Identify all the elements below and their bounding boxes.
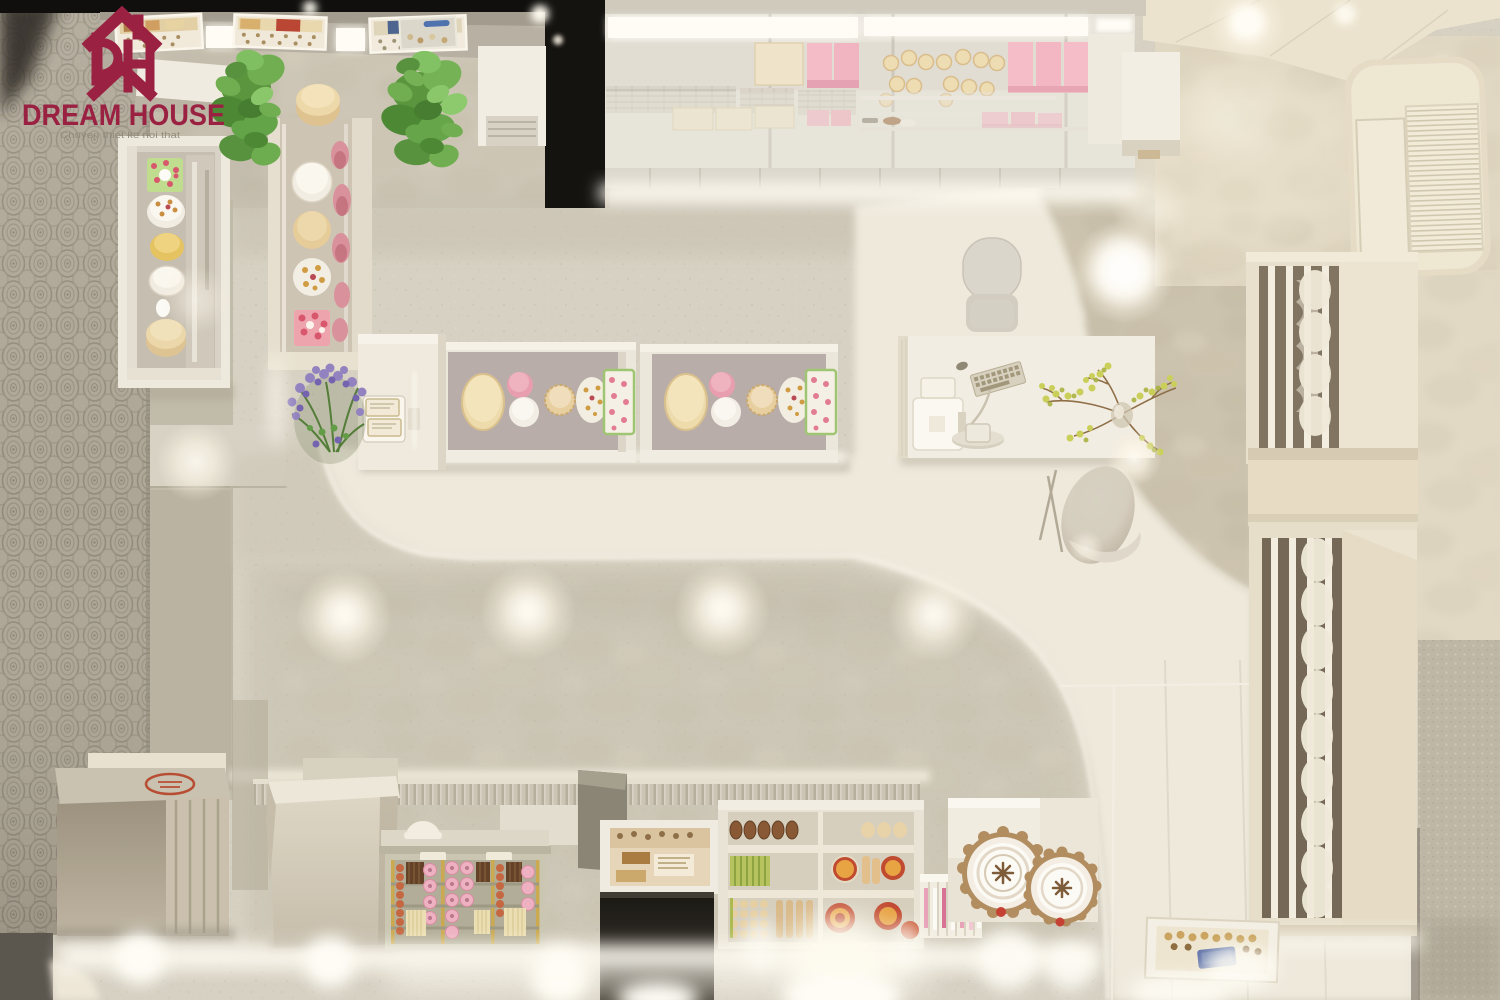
svg-text:Chuyen thiet ke noi that: Chuyen thiet ke noi that [60,130,181,140]
svg-text:DREAM HOUSE: DREAM HOUSE [22,99,225,132]
